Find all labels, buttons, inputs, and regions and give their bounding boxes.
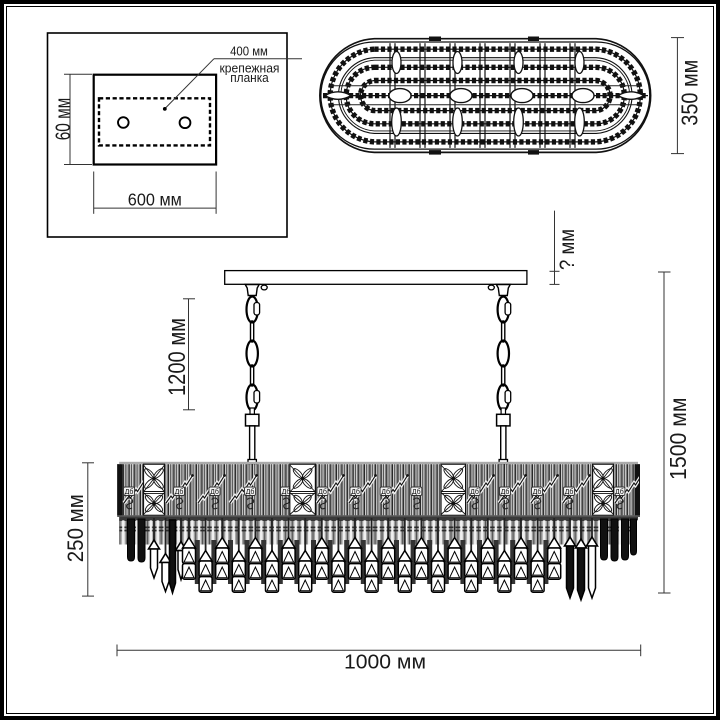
svg-text:Дб: Дб bbox=[351, 488, 360, 496]
svg-text:Дб: Дб bbox=[318, 488, 327, 496]
svg-text:60 мм: 60 мм bbox=[52, 98, 75, 141]
svg-text:1000 мм: 1000 мм bbox=[344, 651, 426, 673]
svg-text:350 мм: 350 мм bbox=[676, 60, 702, 126]
svg-text:Дб: Дб bbox=[282, 488, 291, 496]
svg-text:1500 мм: 1500 мм bbox=[665, 397, 691, 480]
svg-text:Дб: Дб bbox=[246, 488, 255, 496]
svg-text:Дб: Дб bbox=[565, 488, 574, 496]
svg-text:250 мм: 250 мм bbox=[63, 494, 88, 562]
svg-text:Дб: Дб bbox=[125, 488, 134, 496]
svg-text:Дб: Дб bbox=[533, 488, 542, 496]
svg-text:Дб: Дб bbox=[470, 488, 479, 496]
svg-text:Дб: Дб bbox=[501, 488, 510, 496]
svg-text:600 мм: 600 мм bbox=[128, 189, 182, 209]
svg-text:1200 мм: 1200 мм bbox=[164, 318, 191, 396]
svg-text:400 мм: 400 мм bbox=[230, 44, 268, 58]
svg-text:Дб: Дб bbox=[210, 488, 219, 496]
svg-text:Дб: Дб bbox=[412, 488, 421, 496]
svg-text:Дб: Дб bbox=[175, 488, 184, 496]
svg-text:Дб: Дб bbox=[615, 488, 624, 496]
svg-text:Дб: Дб bbox=[381, 488, 390, 496]
svg-text:планка: планка bbox=[230, 71, 269, 85]
svg-text:? мм: ? мм bbox=[556, 229, 579, 270]
